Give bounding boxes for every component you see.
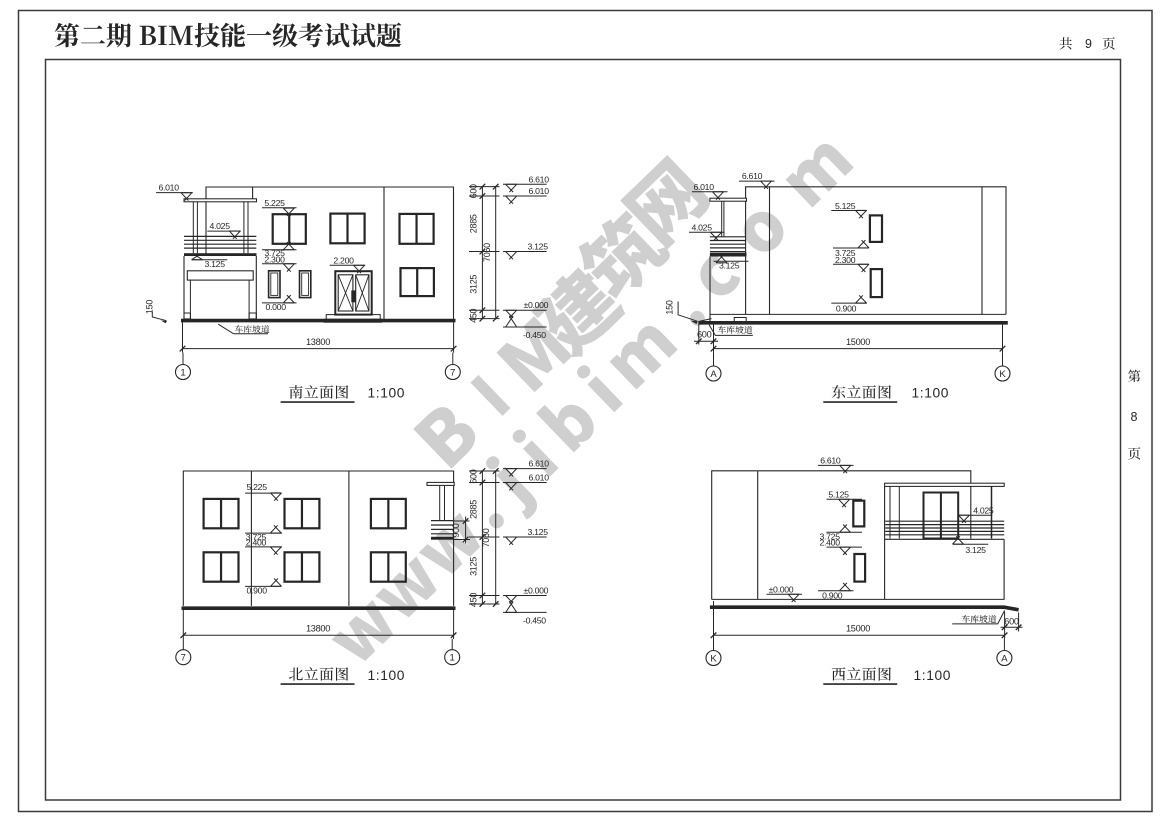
svg-text:6.610: 6.610 — [529, 174, 550, 184]
svg-text:5.125: 5.125 — [828, 490, 849, 500]
svg-text:3.125: 3.125 — [719, 261, 740, 271]
svg-text:1:100: 1:100 — [912, 386, 950, 401]
svg-text:4.025: 4.025 — [692, 223, 713, 233]
svg-text:1:100: 1:100 — [368, 668, 406, 683]
svg-text:±0.000: ±0.000 — [769, 584, 794, 594]
svg-text:8: 8 — [1131, 410, 1138, 424]
svg-text:0.900: 0.900 — [247, 586, 268, 596]
svg-text:5.225: 5.225 — [264, 198, 285, 208]
svg-text:1:100: 1:100 — [914, 668, 952, 683]
svg-text:1:100: 1:100 — [368, 386, 406, 401]
svg-text:3.125: 3.125 — [965, 545, 986, 555]
svg-text:2885: 2885 — [468, 214, 478, 233]
svg-text:6.010: 6.010 — [529, 186, 550, 196]
svg-text:1: 1 — [450, 653, 455, 664]
svg-text:-0.450: -0.450 — [523, 615, 546, 625]
svg-text:7: 7 — [450, 367, 455, 378]
svg-text:6.610: 6.610 — [742, 171, 763, 181]
svg-text:2885: 2885 — [468, 500, 478, 519]
svg-text:3.125: 3.125 — [205, 259, 226, 269]
svg-text:9: 9 — [1085, 37, 1092, 51]
svg-text:4.025: 4.025 — [973, 505, 994, 515]
svg-text:3.125: 3.125 — [528, 242, 549, 252]
svg-text:13800: 13800 — [306, 624, 330, 634]
svg-text:2.400: 2.400 — [246, 538, 267, 548]
svg-text:15000: 15000 — [846, 337, 870, 347]
svg-text:5.225: 5.225 — [247, 482, 268, 492]
svg-text:600: 600 — [468, 469, 478, 483]
svg-text:2.400: 2.400 — [820, 538, 841, 548]
svg-text:±0.000: ±0.000 — [524, 300, 549, 310]
svg-text:6.010: 6.010 — [159, 182, 180, 192]
svg-text:K: K — [710, 653, 717, 664]
svg-text:2.300: 2.300 — [264, 254, 285, 264]
svg-text:450: 450 — [468, 593, 478, 607]
svg-text:0.900: 0.900 — [836, 304, 857, 314]
svg-text:7: 7 — [181, 653, 186, 664]
svg-text:0.000: 0.000 — [266, 302, 287, 312]
svg-text:±0.000: ±0.000 — [524, 586, 549, 596]
svg-text:3125: 3125 — [468, 557, 478, 576]
svg-text:13800: 13800 — [306, 337, 330, 347]
svg-text:6.610: 6.610 — [529, 459, 550, 469]
svg-text:-0.450: -0.450 — [523, 330, 546, 340]
svg-text:15000: 15000 — [846, 624, 870, 634]
svg-text:A: A — [1001, 653, 1008, 664]
svg-text:0.900: 0.900 — [822, 591, 843, 601]
svg-text:6.010: 6.010 — [694, 182, 715, 192]
svg-text:150: 150 — [665, 300, 675, 314]
svg-text:2.300: 2.300 — [835, 255, 856, 265]
svg-text:900: 900 — [451, 523, 461, 537]
svg-text:450: 450 — [468, 308, 478, 322]
svg-text:6.010: 6.010 — [529, 473, 550, 483]
svg-text:3125: 3125 — [468, 275, 478, 294]
svg-text:6.610: 6.610 — [820, 456, 841, 466]
svg-text:7060: 7060 — [481, 528, 491, 547]
svg-text:600: 600 — [697, 330, 712, 340]
svg-text:1: 1 — [180, 367, 185, 378]
svg-text:4.025: 4.025 — [210, 221, 231, 231]
svg-text:K: K — [999, 369, 1006, 380]
svg-text:5.125: 5.125 — [835, 201, 856, 211]
svg-text:A: A — [710, 369, 717, 380]
svg-text:600: 600 — [1004, 616, 1019, 626]
svg-text:7060: 7060 — [482, 243, 492, 262]
svg-text:600: 600 — [468, 184, 478, 198]
svg-text:3.125: 3.125 — [528, 527, 549, 537]
svg-text:2.200: 2.200 — [333, 256, 354, 266]
